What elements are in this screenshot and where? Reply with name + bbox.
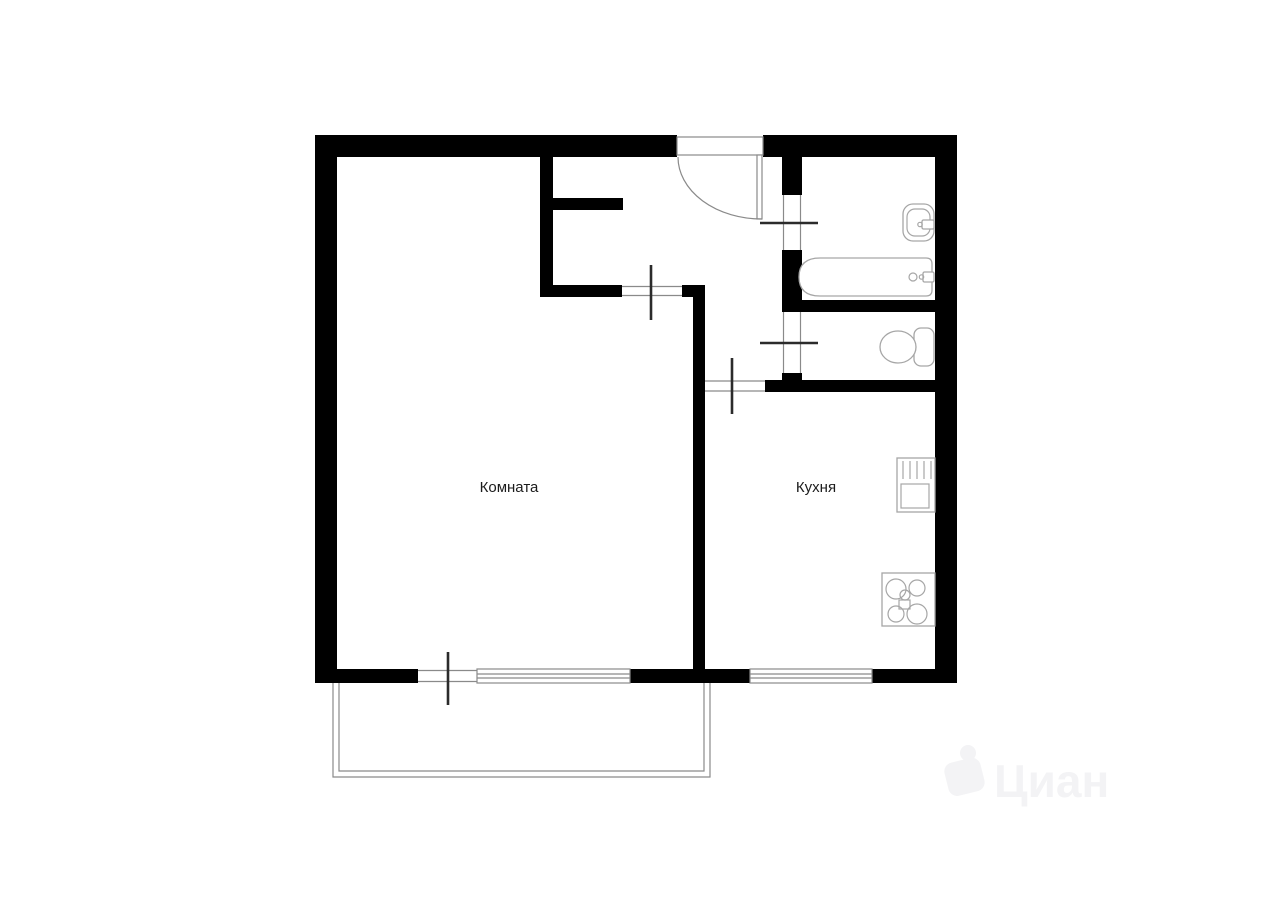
washbasin bbox=[903, 204, 934, 241]
bathtub-outline bbox=[799, 258, 932, 296]
watermark-text: Циан bbox=[994, 755, 1109, 807]
entry-door-threshold bbox=[677, 137, 763, 155]
top-wall-left-segment bbox=[315, 135, 677, 157]
room-hall-wall-right bbox=[682, 285, 705, 297]
entry-door bbox=[677, 137, 763, 219]
balcony-outline bbox=[333, 683, 710, 777]
floor-plan-drawing: Комната Кухня Циан bbox=[0, 0, 1280, 905]
balcony-inner-line bbox=[339, 683, 704, 771]
closet-shelf-wall bbox=[553, 198, 623, 210]
balcony-door bbox=[418, 652, 477, 705]
floor-plan-page: Комната Кухня Циан bbox=[0, 0, 1280, 905]
kitchen-door bbox=[705, 358, 765, 414]
bottom-wall-right-segment bbox=[872, 669, 957, 683]
outer-walls bbox=[315, 135, 957, 683]
toilet-tank bbox=[914, 328, 934, 366]
room-hall-wall-left bbox=[540, 285, 622, 297]
room-label: Комната bbox=[480, 479, 539, 496]
entry-door-swing-arc bbox=[678, 157, 762, 219]
room-window-frame bbox=[477, 669, 630, 683]
stove bbox=[882, 573, 935, 626]
toilet bbox=[880, 328, 934, 366]
hall-bath-wall-top bbox=[782, 157, 802, 195]
bathroom-door bbox=[760, 195, 818, 250]
interior-walls bbox=[540, 157, 935, 669]
room-kitchen-wall bbox=[693, 297, 705, 669]
top-wall-right-segment bbox=[763, 135, 957, 157]
right-wall bbox=[935, 135, 957, 683]
bottom-wall-middle-segment bbox=[630, 669, 750, 683]
kitchen-sink bbox=[897, 458, 935, 512]
bottom-wall-left-segment bbox=[315, 669, 418, 683]
kitchen-window bbox=[750, 669, 872, 683]
bathtub-faucet bbox=[923, 272, 934, 282]
toilet-bowl bbox=[880, 331, 916, 363]
kitchen-window-frame bbox=[750, 669, 872, 683]
toilet-door bbox=[760, 312, 818, 373]
watermark-logo-body bbox=[942, 756, 986, 798]
bathtub bbox=[799, 258, 934, 296]
room-door bbox=[622, 265, 682, 320]
cian-figure-icon bbox=[942, 745, 986, 798]
watermark: Циан bbox=[942, 745, 1109, 807]
kitchen-label: Кухня bbox=[796, 479, 836, 496]
left-wall bbox=[315, 135, 337, 683]
washbasin-faucet bbox=[922, 220, 934, 229]
closet-side-wall bbox=[540, 157, 553, 297]
balcony-outer-line bbox=[333, 683, 710, 777]
room-window bbox=[477, 669, 630, 683]
entry-door-leaf bbox=[757, 155, 762, 219]
kitchen-top-wall bbox=[765, 380, 935, 392]
bath-toilet-divider-wall bbox=[802, 300, 935, 312]
